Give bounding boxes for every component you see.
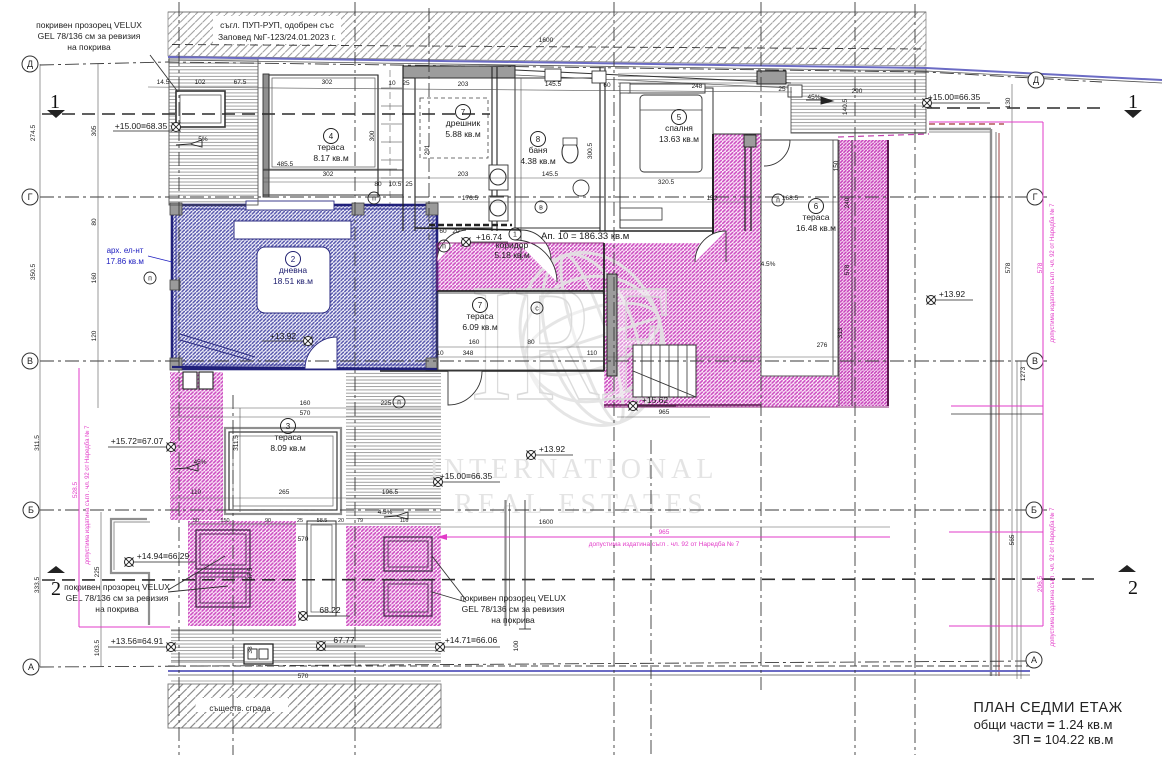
svg-text:4.5%: 4.5% (761, 261, 776, 268)
svg-text:с: с (535, 306, 539, 313)
svg-text:528.5: 528.5 (72, 481, 79, 498)
svg-text:общи части = 1.24 кв.м: общи части = 1.24 кв.м (974, 717, 1113, 732)
svg-text:80: 80 (374, 181, 382, 188)
svg-text:120: 120 (91, 330, 98, 341)
svg-text:103.5: 103.5 (94, 639, 101, 656)
svg-text:17.86 кв.м: 17.86 кв.м (106, 257, 144, 266)
svg-text:176.5: 176.5 (462, 195, 479, 202)
svg-text:25: 25 (297, 518, 303, 524)
svg-text:302: 302 (323, 171, 334, 178)
svg-text:1600: 1600 (539, 519, 554, 526)
svg-text:тераса: тераса (275, 432, 302, 442)
svg-text:13.63 кв.м: 13.63 кв.м (659, 134, 699, 144)
svg-text:п: п (776, 198, 780, 205)
svg-text:п: п (442, 244, 446, 251)
svg-text:допустима издатина съгл . чл.: допустима издатина съгл . чл. 92 от Наре… (589, 540, 740, 548)
svg-text:+15.62: +15.62 (642, 395, 669, 405)
svg-text:38: 38 (247, 646, 254, 654)
svg-text:5%: 5% (198, 136, 208, 143)
svg-text:баня: баня (529, 145, 548, 155)
svg-text:В: В (1032, 356, 1038, 366)
svg-text:Заповед №Г-123/24.01.2023 г.: Заповед №Г-123/24.01.2023 г. (218, 32, 336, 42)
svg-text:58.5: 58.5 (317, 518, 328, 524)
svg-text:290: 290 (852, 88, 863, 95)
svg-text:570: 570 (298, 536, 309, 543)
svg-text:4.5%: 4.5% (378, 509, 393, 516)
svg-text:110: 110 (587, 350, 598, 357)
svg-text:+15.00=66.35: +15.00=66.35 (440, 471, 493, 481)
svg-text:578: 578 (1005, 262, 1012, 273)
svg-text:145.5: 145.5 (545, 81, 562, 88)
svg-text:305: 305 (91, 125, 98, 136)
svg-text:7: 7 (478, 301, 483, 310)
svg-text:485.5: 485.5 (277, 161, 294, 168)
svg-text:145.5: 145.5 (542, 171, 559, 178)
svg-text:п: п (148, 276, 152, 283)
svg-text:8.17 кв.м: 8.17 кв.м (313, 153, 349, 163)
svg-text:25: 25 (405, 181, 413, 188)
svg-text:допустима издатина съгл . чл.: допустима издатина съгл . чл. 92 от Наре… (1049, 507, 1056, 647)
svg-text:8.09 кв.м: 8.09 кв.м (270, 443, 306, 453)
svg-text:8: 8 (536, 135, 541, 144)
svg-text:291: 291 (424, 144, 431, 155)
svg-text:578: 578 (1037, 262, 1044, 273)
svg-text:1: 1 (50, 91, 60, 113)
svg-text:18.51 кв.м: 18.51 кв.м (273, 276, 313, 286)
svg-text:дневна: дневна (279, 265, 308, 275)
svg-text:+13.92: +13.92 (270, 331, 297, 341)
svg-text:на покрива: на покрива (67, 42, 111, 52)
svg-text:110: 110 (191, 489, 202, 496)
svg-text:2: 2 (291, 255, 296, 264)
svg-text:на покрива: на покрива (491, 615, 535, 625)
svg-text:тераса: тераса (803, 212, 830, 222)
svg-text:арх. ел-нт: арх. ел-нт (107, 246, 144, 255)
svg-text:350.5: 350.5 (30, 263, 37, 280)
svg-text:5.18 кв.м: 5.18 кв.м (494, 250, 530, 260)
svg-text:130: 130 (1005, 97, 1012, 108)
svg-text:225: 225 (381, 400, 392, 407)
svg-text:80: 80 (91, 218, 98, 226)
svg-text:REAL ESTATES: REAL ESTATES (454, 489, 708, 520)
svg-text:20: 20 (338, 518, 344, 524)
svg-text:GEL 78/136 см за ревизия: GEL 78/136 см за ревизия (462, 604, 565, 614)
svg-text:60: 60 (603, 82, 611, 89)
svg-text:+14.71=66.06: +14.71=66.06 (445, 635, 498, 645)
svg-text:1273: 1273 (1020, 366, 1027, 381)
svg-text:В: В (27, 356, 33, 366)
svg-text:3: 3 (286, 422, 291, 431)
svg-text:4: 4 (329, 132, 334, 141)
svg-text:5: 5 (677, 113, 682, 122)
svg-text:203: 203 (458, 81, 469, 88)
svg-text:320.5: 320.5 (658, 179, 675, 186)
svg-text:ЗП = 104.22 кв.м: ЗП = 104.22 кв.м (1013, 732, 1114, 747)
svg-text:150: 150 (220, 518, 229, 524)
svg-text:покривен прозорец VELUX: покривен прозорец VELUX (36, 20, 142, 30)
svg-text:Д: Д (1033, 75, 1039, 85)
svg-text:240: 240 (844, 197, 851, 208)
svg-text:248: 248 (692, 83, 703, 90)
svg-text:10: 10 (436, 350, 444, 357)
svg-text:311.5: 311.5 (233, 435, 240, 451)
svg-text:50: 50 (193, 518, 199, 524)
svg-text:578: 578 (844, 264, 851, 275)
svg-text:1600: 1600 (539, 37, 554, 44)
svg-text:съгл. ПУП-РУП, одобрен със: съгл. ПУП-РУП, одобрен със (220, 20, 334, 30)
svg-text:300: 300 (369, 130, 376, 141)
svg-text:+15.00=66.35: +15.00=66.35 (928, 92, 981, 102)
svg-text:160: 160 (469, 339, 480, 346)
svg-text:спалня: спалня (665, 123, 693, 133)
svg-text:225: 225 (94, 566, 101, 577)
svg-text:покривен прозорец VELUX: покривен прозорец VELUX (460, 593, 566, 603)
svg-text:+13.92: +13.92 (939, 289, 966, 299)
svg-text:333.5: 333.5 (34, 576, 41, 593)
svg-text:GEL 78/136 см за ревизия: GEL 78/136 см за ревизия (66, 593, 169, 603)
svg-text:+13.92: +13.92 (539, 444, 566, 454)
svg-text:152: 152 (707, 195, 718, 202)
svg-text:+15.72=67.07: +15.72=67.07 (111, 436, 164, 446)
svg-text:+15.00=68.35: +15.00=68.35 (115, 121, 168, 131)
svg-text:203: 203 (458, 171, 469, 178)
svg-text:2: 2 (51, 578, 61, 600)
svg-text:565: 565 (1009, 534, 1016, 545)
svg-text:37.5: 37.5 (247, 567, 254, 580)
svg-text:25: 25 (778, 86, 786, 93)
svg-text:206.5: 206.5 (1037, 575, 1044, 592)
svg-text:10.5: 10.5 (389, 181, 402, 188)
svg-text:Д: Д (27, 59, 33, 69)
svg-text:допустима издатина съгл . чл.: допустима издатина съгл . чл. 92 от Наре… (84, 425, 91, 565)
svg-text:79: 79 (357, 518, 363, 524)
svg-text:965: 965 (659, 409, 670, 416)
svg-text:265: 265 (279, 489, 290, 496)
svg-text:348: 348 (463, 350, 474, 357)
svg-text:Г: Г (28, 192, 33, 202)
svg-text:302: 302 (322, 79, 333, 86)
svg-text:6: 6 (814, 202, 819, 211)
svg-text:п: п (397, 400, 401, 407)
svg-text:60: 60 (439, 228, 447, 235)
svg-text:GEL 78/136 см за ревизия: GEL 78/136 см за ревизия (38, 31, 141, 41)
svg-text:+14.94=66.29: +14.94=66.29 (137, 551, 190, 561)
svg-text:на покрива: на покрива (95, 604, 139, 614)
svg-text:А: А (1031, 655, 1037, 665)
svg-text:Б: Б (1031, 505, 1037, 515)
svg-text:ПЛАН СЕДМИ ЕТАЖ: ПЛАН СЕДМИ ЕТАЖ (973, 700, 1122, 716)
svg-text:А: А (28, 662, 34, 672)
svg-text:16.48 кв.м: 16.48 кв.м (796, 223, 836, 233)
svg-text:20: 20 (452, 228, 460, 235)
svg-text:196.5: 196.5 (382, 489, 399, 496)
svg-text:102: 102 (195, 79, 206, 86)
svg-text:1: 1 (1128, 91, 1138, 113)
svg-text:IRE: IRE (470, 250, 678, 436)
svg-text:14.5: 14.5 (157, 79, 170, 86)
svg-text:1: 1 (513, 232, 517, 239)
svg-text:допустима издатина съгл . чл.: допустима издатина съгл . чл. 92 от Наре… (1049, 203, 1056, 343)
svg-text:67.5: 67.5 (234, 79, 247, 86)
svg-text:570: 570 (300, 410, 311, 417)
svg-text:в: в (539, 205, 543, 212)
svg-text:140.5: 140.5 (842, 98, 849, 115)
svg-text:+16.74: +16.74 (476, 232, 503, 242)
svg-text:10: 10 (388, 80, 396, 87)
svg-text:300.5: 300.5 (587, 142, 594, 159)
svg-text:4.38 кв.м: 4.38 кв.м (520, 156, 556, 166)
svg-text:25: 25 (402, 80, 410, 87)
svg-text:276: 276 (817, 342, 828, 349)
svg-text:100: 100 (513, 640, 520, 651)
svg-text:570: 570 (298, 673, 309, 680)
svg-text:п: п (372, 196, 376, 203)
svg-text:68.22: 68.22 (319, 605, 341, 615)
svg-text:дрешник: дрешник (446, 118, 481, 128)
svg-text:Г: Г (1033, 192, 1038, 202)
svg-text:6.09 кв.м: 6.09 кв.м (462, 322, 498, 332)
svg-text:+13.56=64.91: +13.56=64.91 (111, 636, 164, 646)
svg-text:тераса: тераса (318, 142, 345, 152)
svg-text:965: 965 (659, 529, 670, 536)
svg-text:Ап. 10 = 186.33 кв.м: Ап. 10 = 186.33 кв.м (541, 231, 629, 242)
svg-text:2: 2 (1128, 577, 1138, 599)
svg-text:160: 160 (300, 400, 311, 407)
svg-text:160: 160 (91, 272, 98, 283)
svg-text:168.5: 168.5 (782, 195, 799, 202)
svg-text:5.88 кв.м: 5.88 кв.м (445, 129, 481, 139)
svg-text:Б: Б (28, 505, 34, 515)
svg-text:313: 313 (837, 327, 844, 338)
svg-text:311.5: 311.5 (34, 435, 41, 451)
svg-text:7: 7 (461, 108, 466, 117)
svg-text:съществ. сграда: съществ. сграда (209, 704, 271, 713)
svg-text:тераса: тераса (467, 311, 494, 321)
svg-text:90: 90 (265, 518, 271, 524)
svg-text:67.77: 67.77 (333, 635, 355, 645)
svg-text:покривен прозорец VELUX: покривен прозорец VELUX (64, 582, 170, 592)
svg-text:274.5: 274.5 (30, 124, 37, 141)
svg-text:80: 80 (527, 339, 535, 346)
